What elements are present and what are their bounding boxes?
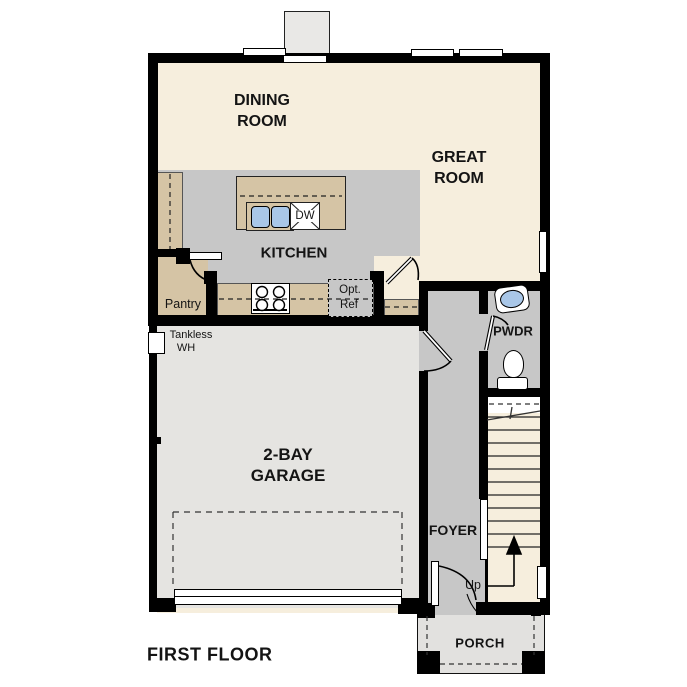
garage-label-line1: 2-BAY (263, 445, 312, 465)
wall-passage-left (374, 283, 384, 317)
left-wall-counter (157, 172, 183, 250)
powder-room-label: PWDR (493, 324, 533, 339)
pantry-label: Pantry (165, 297, 201, 311)
kitchen-sink (246, 202, 294, 231)
window-dining-left (243, 48, 286, 56)
porch-post-bottom-right (522, 651, 545, 674)
window-greatroom-top-2 (459, 49, 503, 57)
stair-foyer-divider (485, 560, 488, 604)
wall-left-garage (149, 325, 157, 612)
wall-left-upper (148, 53, 158, 325)
wall-bottom-garage-left (149, 598, 176, 612)
dishwasher-label: DW (294, 210, 315, 222)
garage-overhead-door (174, 589, 402, 605)
wall-kitchen-garage (148, 315, 427, 326)
opt-ref-label-line2: Ref (340, 299, 358, 311)
stove-front-bar (253, 309, 287, 311)
stair-top-landing (488, 396, 540, 413)
wall-garage-foyer-lower (419, 371, 428, 604)
wall-garage-foyer-upper (419, 283, 428, 331)
foyer-hall-floor (419, 283, 488, 613)
porch-label: PORCH (455, 636, 504, 651)
stair-railing (480, 499, 488, 560)
first-floor-plan: DINING ROOM GREAT ROOM KITCHEN Pantry DW… (0, 0, 687, 687)
wall-left-notch (153, 437, 161, 444)
great-room-label-line1: GREAT (432, 149, 487, 167)
tankless-water-heater-unit (148, 332, 165, 354)
kitchen-label: KITCHEN (261, 245, 328, 262)
window-stairs-right (537, 566, 547, 599)
wall-stairs-left (479, 396, 488, 499)
window-greatroom-top-1 (411, 49, 454, 57)
wall-pantry-stub (148, 249, 178, 257)
chimney (284, 11, 330, 56)
powder-sink (493, 284, 530, 314)
great-room-label-line2: ROOM (434, 170, 484, 188)
drop-zone-shelf (384, 299, 419, 316)
toilet-bowl (503, 350, 524, 378)
stairs-up-label: Up (465, 578, 481, 592)
window-dining-right (283, 55, 327, 63)
wall-right (540, 53, 550, 615)
porch-post-bottom-left (417, 651, 440, 674)
foyer-label: FOYER (429, 522, 477, 538)
toilet-tank (497, 377, 528, 390)
wall-pantry-jamb-upper (176, 248, 190, 264)
porch-post-top-right (531, 604, 541, 616)
stove (251, 283, 290, 314)
wall-powder-left-upper (479, 291, 488, 314)
garage-label-line2: GARAGE (251, 466, 326, 486)
window-greatroom-right (539, 231, 547, 273)
tankless-wh-label-line2: WH (177, 342, 195, 354)
front-door-leaf (431, 561, 439, 606)
powder-sink-bowl (499, 288, 525, 309)
tankless-wh-label-line1: Tankless (170, 329, 213, 341)
floor-plan-title: FIRST FLOOR (147, 645, 273, 666)
sink-basin-right (271, 206, 290, 228)
sink-basin-left (251, 206, 270, 228)
dining-room-label-line1: DINING (234, 92, 290, 110)
wall-greatroom-hall (419, 281, 550, 291)
garage-door-midline (175, 596, 401, 597)
dining-room-label-line2: ROOM (237, 113, 287, 131)
pantry-door-leaf (189, 252, 222, 260)
wall-pantry-right (206, 272, 217, 325)
opt-ref-label-line1: Opt. (339, 284, 361, 296)
